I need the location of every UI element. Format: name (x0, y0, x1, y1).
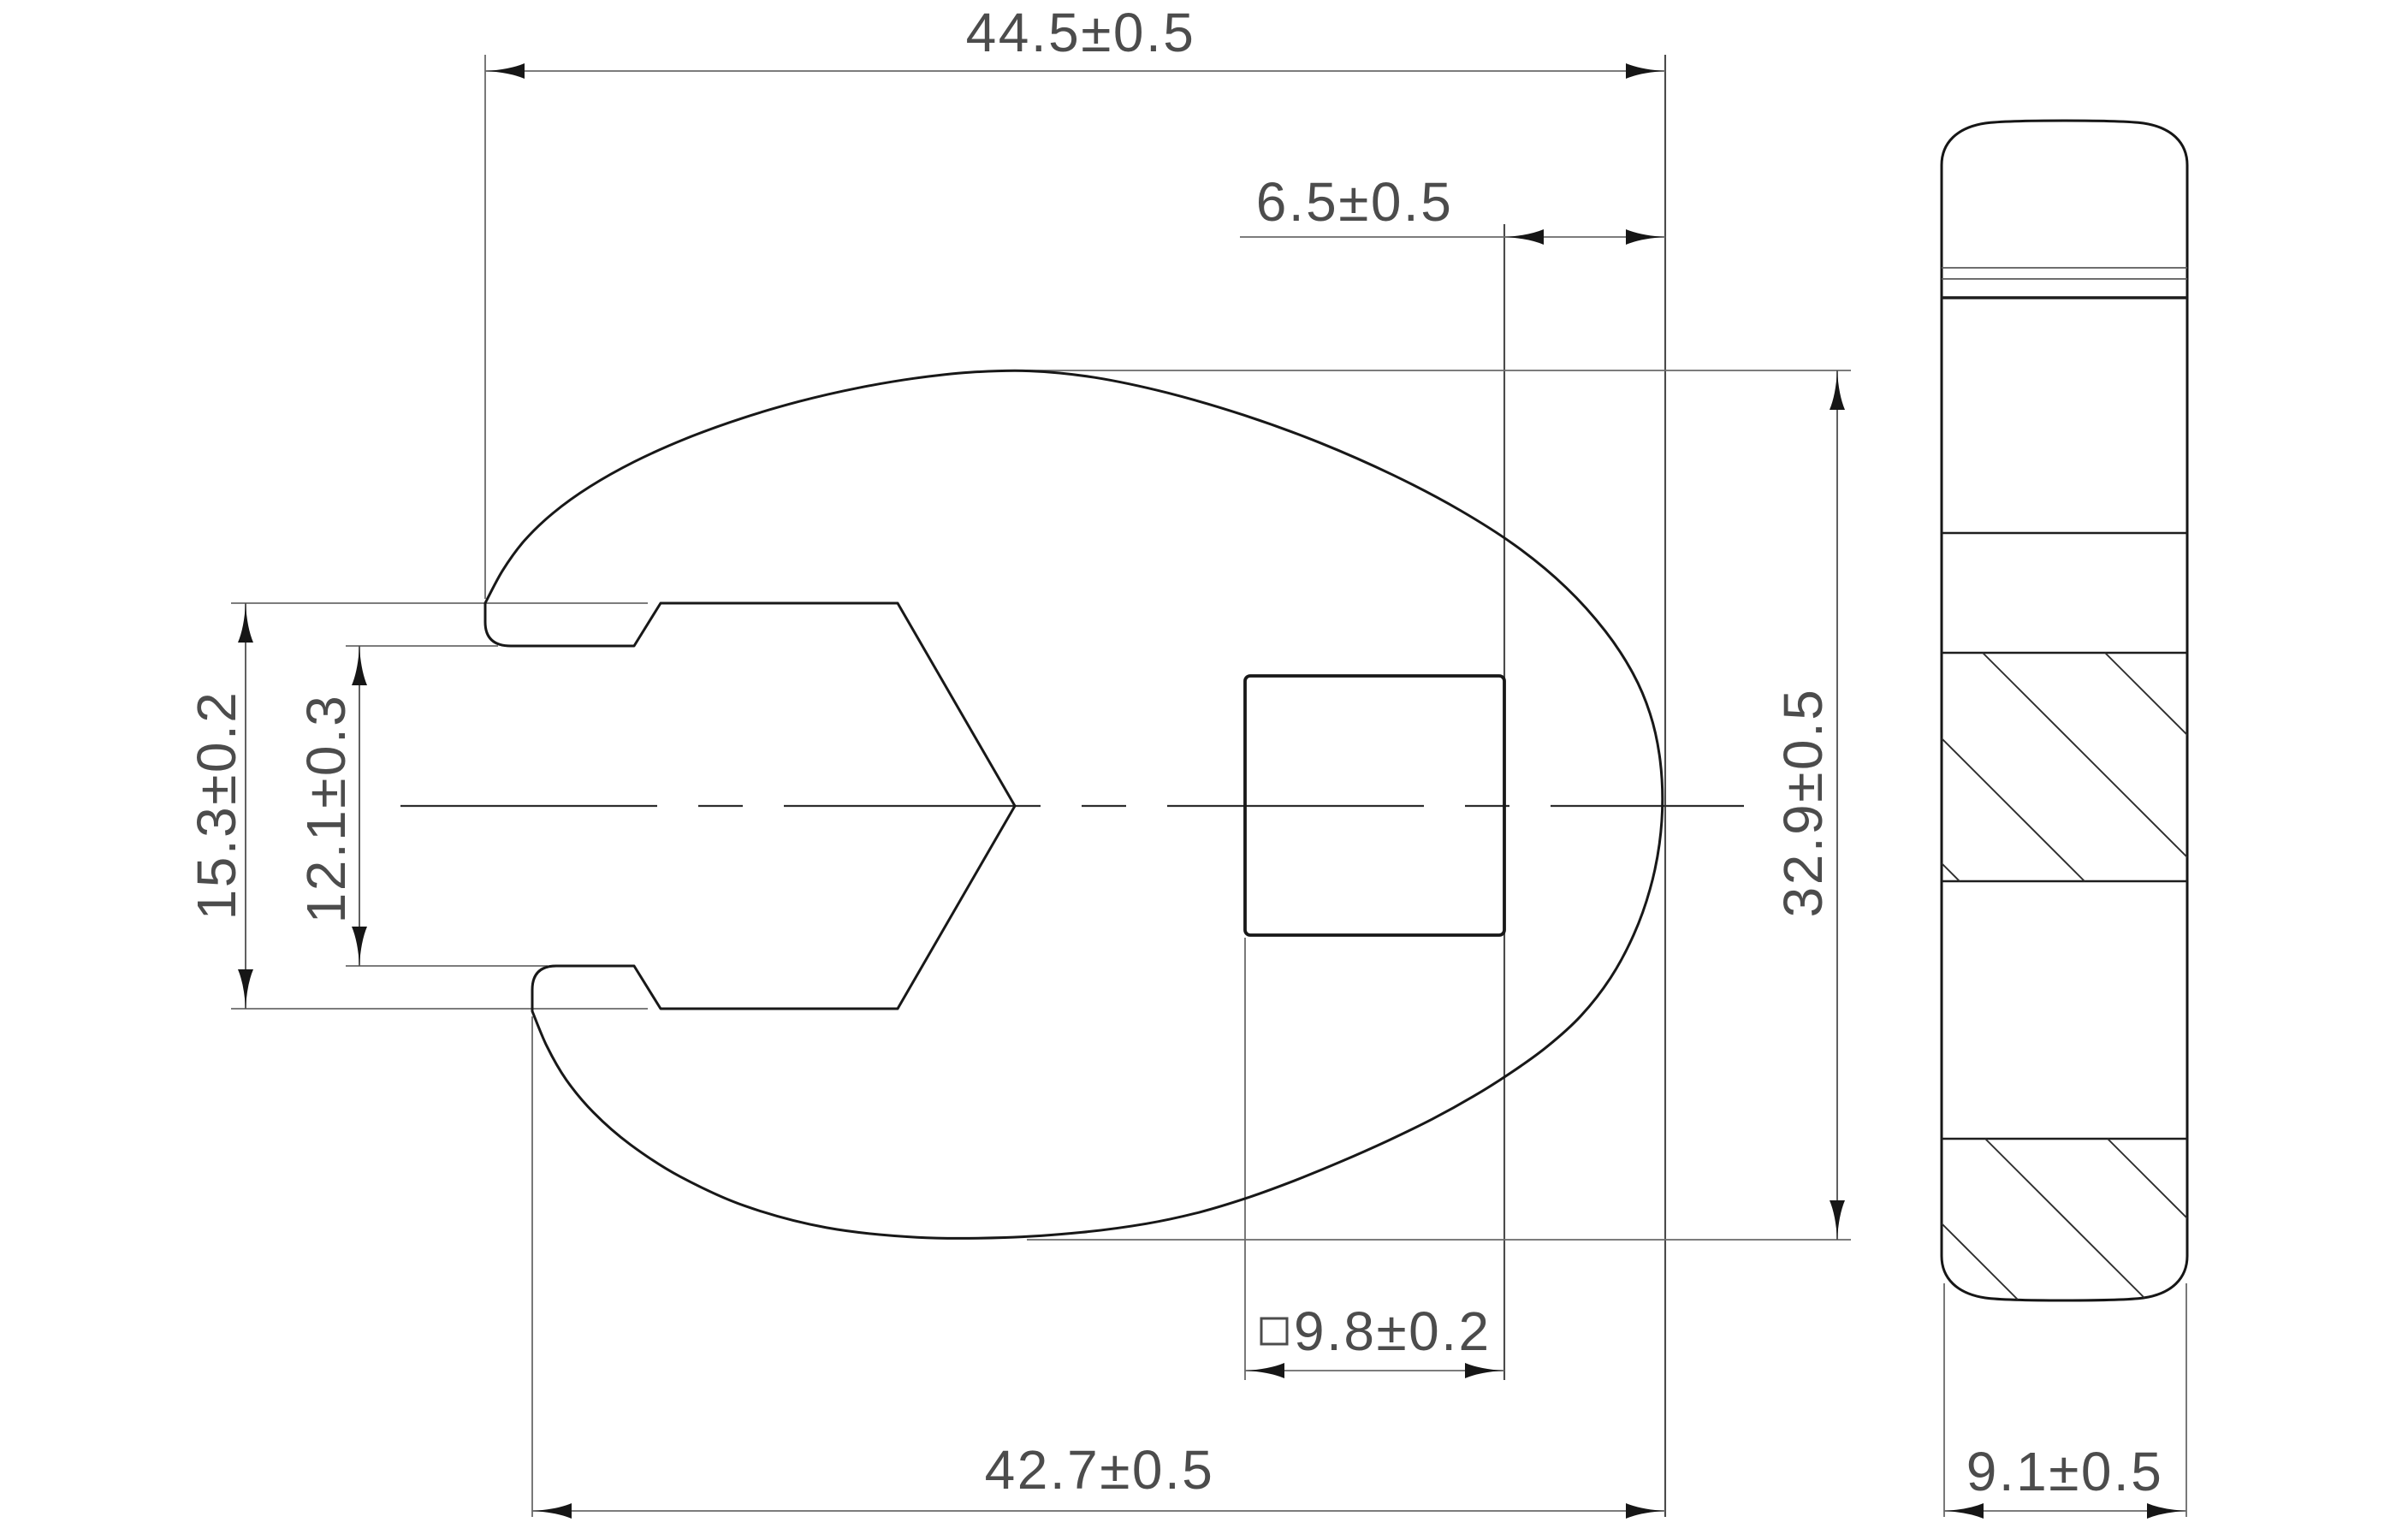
svg-text:32.9±0.5: 32.9±0.5 (1772, 688, 1834, 918)
svg-text:12.1±0.3: 12.1±0.3 (295, 694, 357, 924)
svg-text:15.3±0.2: 15.3±0.2 (186, 690, 247, 921)
svg-text:42.7±0.5: 42.7±0.5 (985, 1439, 1215, 1501)
svg-text:44.5±0.5: 44.5±0.5 (966, 2, 1196, 63)
svg-text:6.5±0.5: 6.5±0.5 (1256, 171, 1454, 233)
svg-text:9.1±0.5: 9.1±0.5 (1966, 1441, 2164, 1502)
svg-text:9.8±0.2: 9.8±0.2 (1294, 1300, 1492, 1362)
